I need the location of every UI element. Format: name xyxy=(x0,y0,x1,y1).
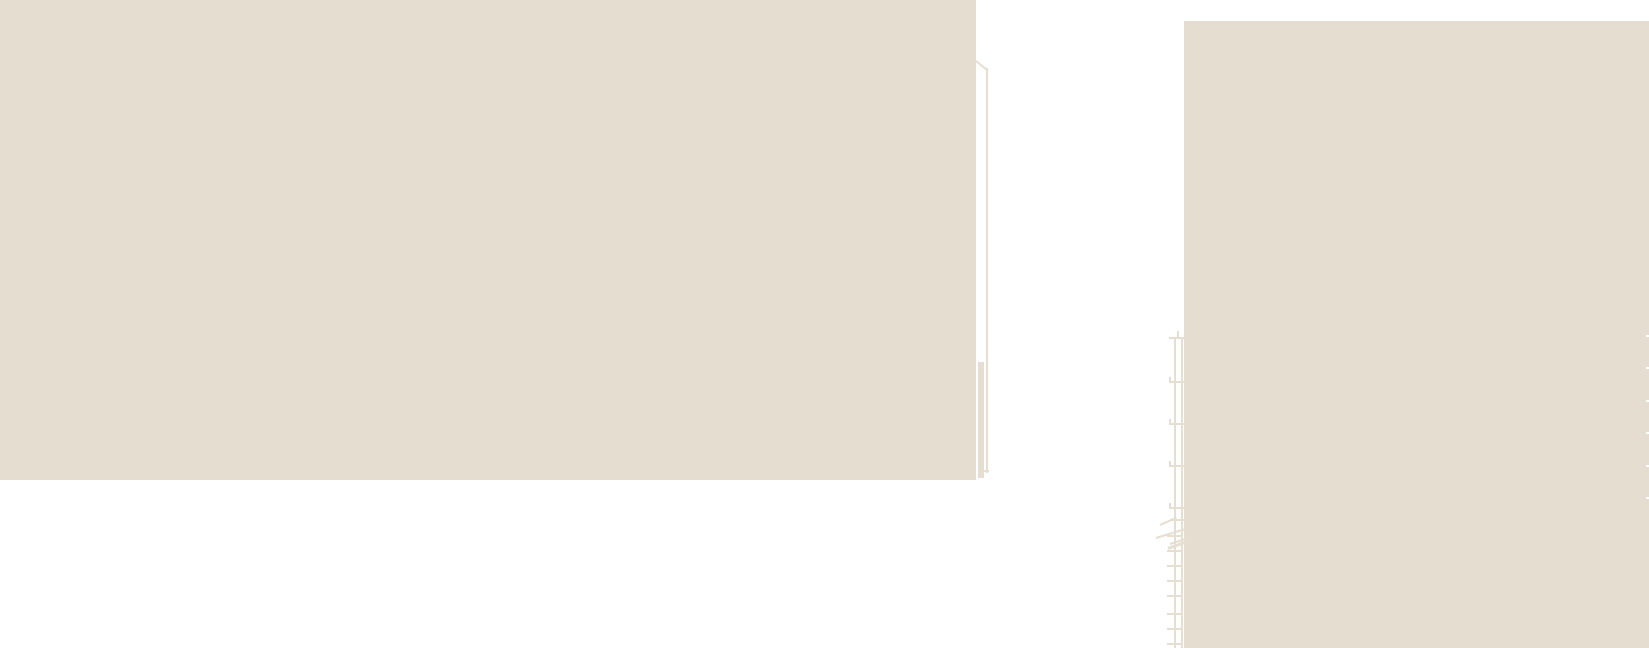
ladder-rung-lower-4 xyxy=(1167,580,1183,582)
right-building-facade xyxy=(1184,21,1649,648)
ladder-rung-lower-5 xyxy=(1167,595,1183,597)
ladder-rung-end-tick-5 xyxy=(1169,503,1171,507)
ladder-rung-upper-5 xyxy=(1169,507,1184,509)
ladder-rung-lower-8 xyxy=(1167,643,1183,645)
ladder-rung-lower-7 xyxy=(1167,628,1183,630)
ladder-rung-lower-2 xyxy=(1167,550,1183,552)
left-building-facade xyxy=(0,0,976,480)
drainpipe xyxy=(986,68,988,473)
ladder-rung-lower-3 xyxy=(1167,565,1183,567)
ladder-rung-upper-4 xyxy=(1169,465,1184,467)
ladder-rail-left xyxy=(1174,337,1176,648)
ladder-rung-end-tick-2 xyxy=(1169,377,1171,381)
overexposed-buildings-photo xyxy=(0,0,1649,648)
ladder-rung-lower-6 xyxy=(1167,613,1183,615)
ladder-rung-lower-1 xyxy=(1167,535,1183,537)
ladder-rung-end-tick-3 xyxy=(1169,419,1171,423)
ladder-rung-upper-3 xyxy=(1169,423,1184,425)
drainpipe-foot xyxy=(978,470,989,472)
ladder-rung-end-tick-4 xyxy=(1169,461,1171,465)
ladder-rail-right xyxy=(1181,337,1183,648)
drainpipe-lower-section xyxy=(978,362,984,478)
ladder-rung-upper-2 xyxy=(1169,381,1184,383)
ladder-rung-upper-1 xyxy=(1169,337,1184,339)
